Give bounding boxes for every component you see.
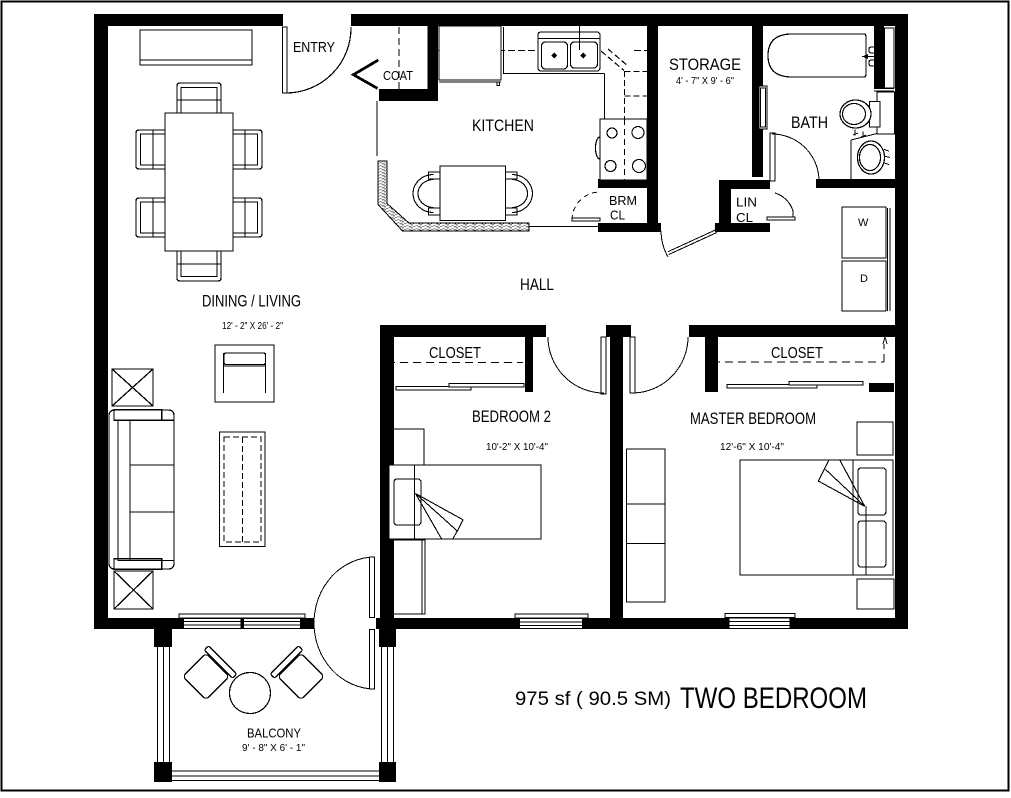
svg-text:LIN: LIN	[736, 195, 757, 210]
svg-text:DINING / LIVING: DINING / LIVING	[202, 292, 301, 311]
svg-text:D: D	[860, 273, 868, 285]
svg-text:12' - 2" X 26' - 2": 12' - 2" X 26' - 2"	[222, 320, 283, 332]
svg-text:ENTRY: ENTRY	[293, 39, 335, 56]
svg-text:COAT: COAT	[383, 69, 413, 83]
svg-text:CLOSET: CLOSET	[771, 345, 823, 362]
svg-text:BATH: BATH	[791, 113, 828, 132]
svg-text:KITCHEN: KITCHEN	[472, 116, 534, 135]
svg-text:12'-6" X 10'-4": 12'-6" X 10'-4"	[720, 441, 784, 453]
svg-text:STORAGE: STORAGE	[669, 55, 741, 74]
svg-text:10'-2" X 10'-4": 10'-2" X 10'-4"	[486, 441, 548, 453]
svg-text:MASTER BEDROOM: MASTER BEDROOM	[690, 409, 816, 428]
svg-text:TWO BEDROOM: TWO BEDROOM	[680, 682, 867, 715]
svg-text:BALCONY: BALCONY	[247, 726, 301, 741]
svg-text:975 sf ( 90.5 SM): 975 sf ( 90.5 SM)	[515, 689, 671, 710]
svg-text:BRM: BRM	[609, 193, 637, 208]
svg-text:HALL: HALL	[520, 275, 554, 294]
svg-text:W: W	[858, 217, 869, 229]
svg-text:CLOSET: CLOSET	[429, 345, 481, 362]
svg-text:9' - 8" X 6' - 1": 9' - 8" X 6' - 1"	[242, 742, 305, 754]
svg-text:CL: CL	[610, 208, 625, 223]
svg-text:CL: CL	[736, 210, 753, 225]
svg-text:4' - 7" X 9' - 6": 4' - 7" X 9' - 6"	[676, 75, 734, 87]
svg-text:BEDROOM 2: BEDROOM 2	[472, 407, 551, 426]
